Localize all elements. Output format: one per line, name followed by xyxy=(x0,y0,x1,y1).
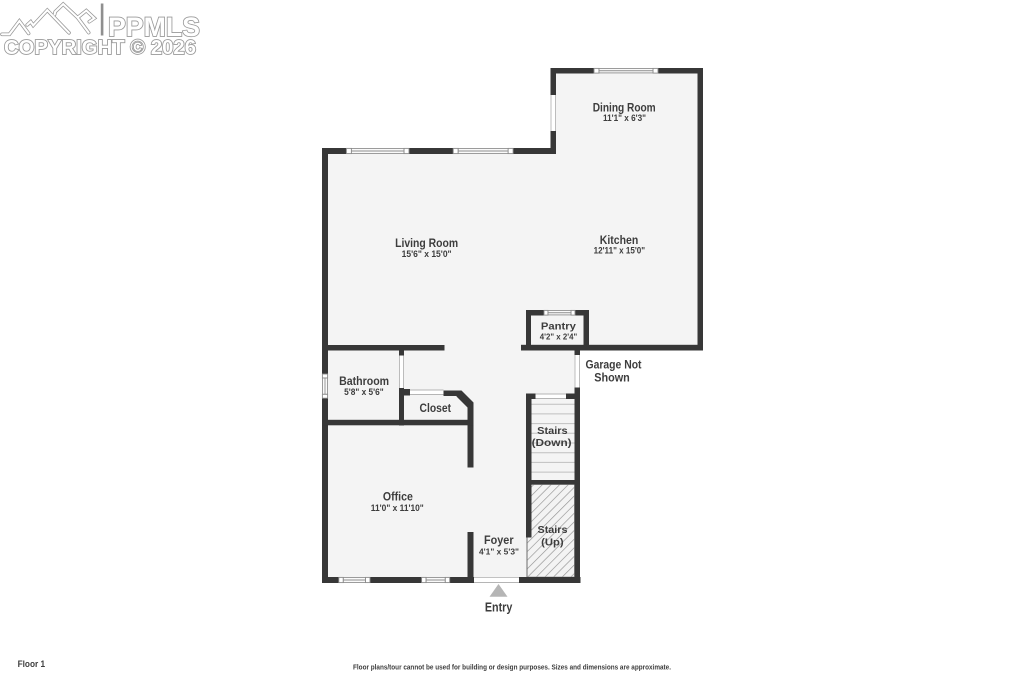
svg-text:12'11" x 15'0": 12'11" x 15'0" xyxy=(594,246,646,256)
svg-text:Entry: Entry xyxy=(485,601,513,615)
svg-text:Stairs: Stairs xyxy=(537,425,568,437)
svg-text:Stairs: Stairs xyxy=(538,524,568,536)
svg-text:15'6" x 15'0": 15'6" x 15'0" xyxy=(402,249,452,259)
svg-text:11'0" x 11'10": 11'0" x 11'10" xyxy=(371,503,424,513)
svg-text:Closet: Closet xyxy=(420,403,452,415)
svg-text:Foyer: Foyer xyxy=(484,535,514,547)
svg-text:11'1" x 6'3": 11'1" x 6'3" xyxy=(603,113,646,123)
svg-text:COPYRIGHT © 2026: COPYRIGHT © 2026 xyxy=(4,37,196,59)
svg-text:Bathroom: Bathroom xyxy=(339,374,389,388)
svg-text:5'8" x 5'6": 5'8" x 5'6" xyxy=(344,387,384,397)
svg-text:4'2" x 2'4": 4'2" x 2'4" xyxy=(540,332,578,342)
svg-text:Shown: Shown xyxy=(594,371,630,385)
svg-text:(Down): (Down) xyxy=(532,437,572,449)
svg-text:Pantry: Pantry xyxy=(541,321,576,333)
svg-text:Floor plans/tour cannot be use: Floor plans/tour cannot be used for buil… xyxy=(353,663,671,672)
svg-text:4'1" x 5'3": 4'1" x 5'3" xyxy=(479,547,519,557)
svg-text:(Up): (Up) xyxy=(541,536,564,548)
svg-text:Floor 1: Floor 1 xyxy=(18,659,46,670)
svg-text:Office: Office xyxy=(383,492,413,504)
svg-text:Garage Not: Garage Not xyxy=(586,357,642,371)
